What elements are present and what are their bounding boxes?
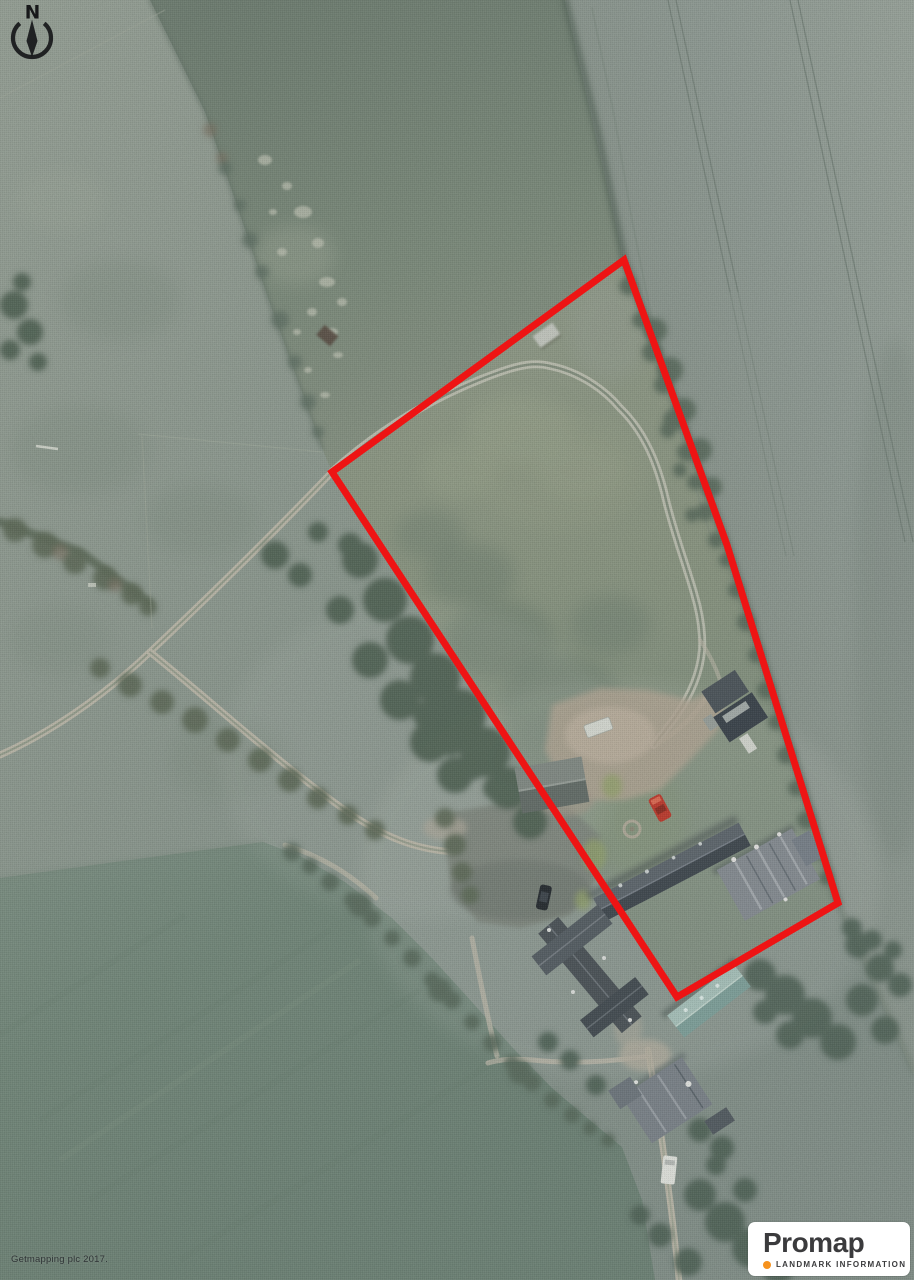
photo-grain [0, 0, 914, 1280]
landmark-dot-icon [763, 1261, 771, 1269]
compass-label: N [25, 3, 40, 24]
north-arrow-icon: N [4, 2, 64, 68]
promap-logo-text: Promap [763, 1229, 910, 1257]
landmark-subtitle: LANDMARK INFORMATION [776, 1260, 906, 1269]
copyright-label: Getmapping plc 2017. [11, 1254, 108, 1265]
promap-logo: Promap LANDMARK INFORMATION [748, 1222, 910, 1276]
aerial-photo [0, 0, 914, 1280]
map-canvas: N Getmapping plc 2017. Promap LANDMARK I… [0, 0, 914, 1280]
